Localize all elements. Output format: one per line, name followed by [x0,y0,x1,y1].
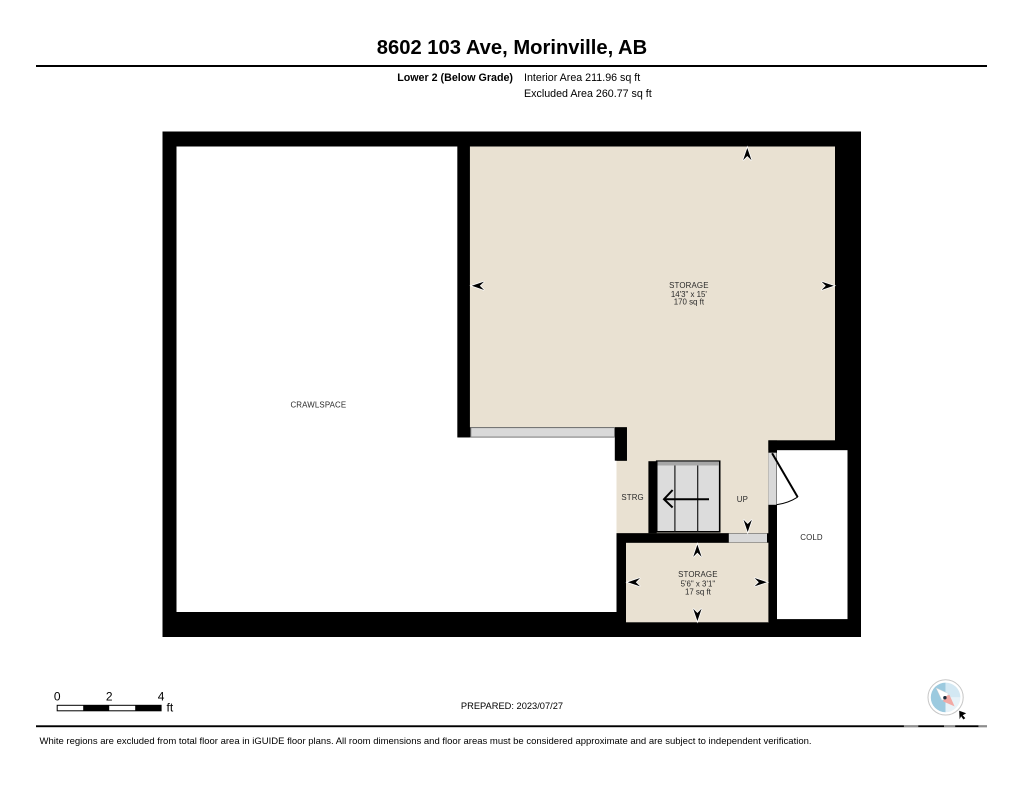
svg-text:ft: ft [167,701,174,715]
svg-text:COLD: COLD [800,533,823,542]
svg-text:White regions are excluded fro: White regions are excluded from total fl… [40,736,812,747]
svg-text:CRAWLSPACE: CRAWLSPACE [290,400,346,409]
svg-text:STORAGE: STORAGE [669,281,709,290]
svg-text:17 sq ft: 17 sq ft [685,587,712,596]
svg-text:170 sq ft: 170 sq ft [674,298,705,307]
svg-text:PREPARED: 2023/07/27: PREPARED: 2023/07/27 [461,701,563,711]
svg-text:STRG: STRG [621,493,644,502]
svg-text:4: 4 [158,690,165,704]
svg-text:STORAGE: STORAGE [678,570,718,579]
svg-text:2: 2 [106,690,113,704]
svg-text:0: 0 [54,690,61,704]
svg-text:UP: UP [737,495,748,504]
